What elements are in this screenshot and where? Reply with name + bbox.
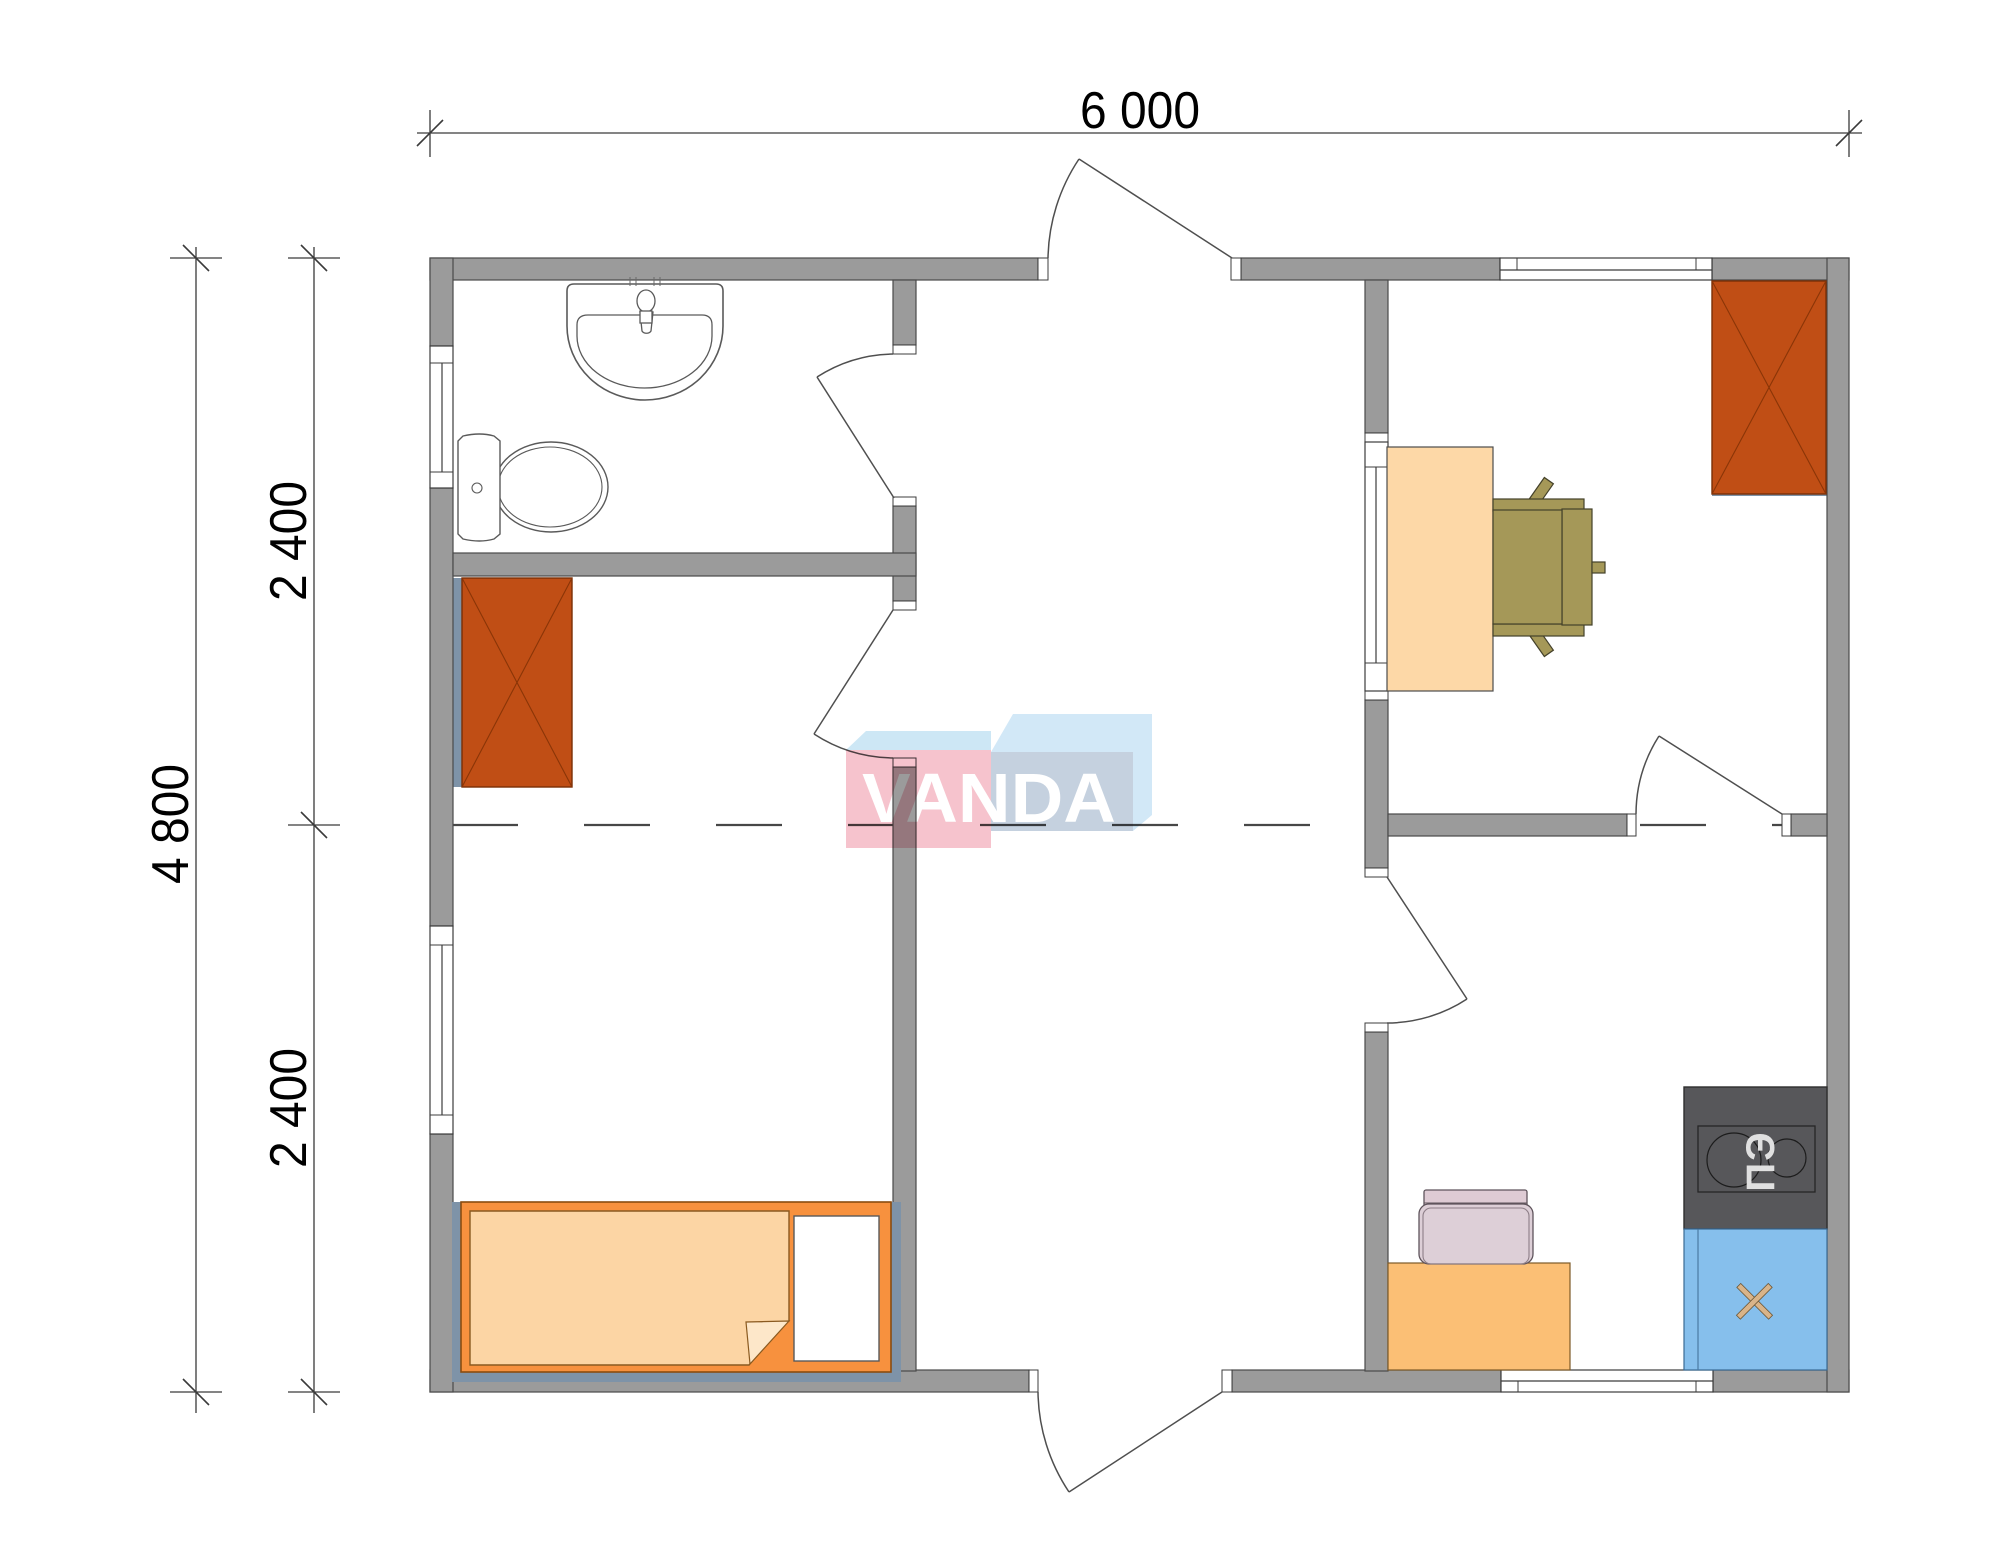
svg-text:6 000: 6 000 [1080, 82, 1200, 140]
svg-text:2 400: 2 400 [260, 1048, 318, 1168]
svg-text:ПЭ: ПЭ [1739, 1130, 1783, 1191]
svg-text:4 800: 4 800 [142, 764, 200, 884]
svg-text:2 400: 2 400 [260, 481, 318, 601]
